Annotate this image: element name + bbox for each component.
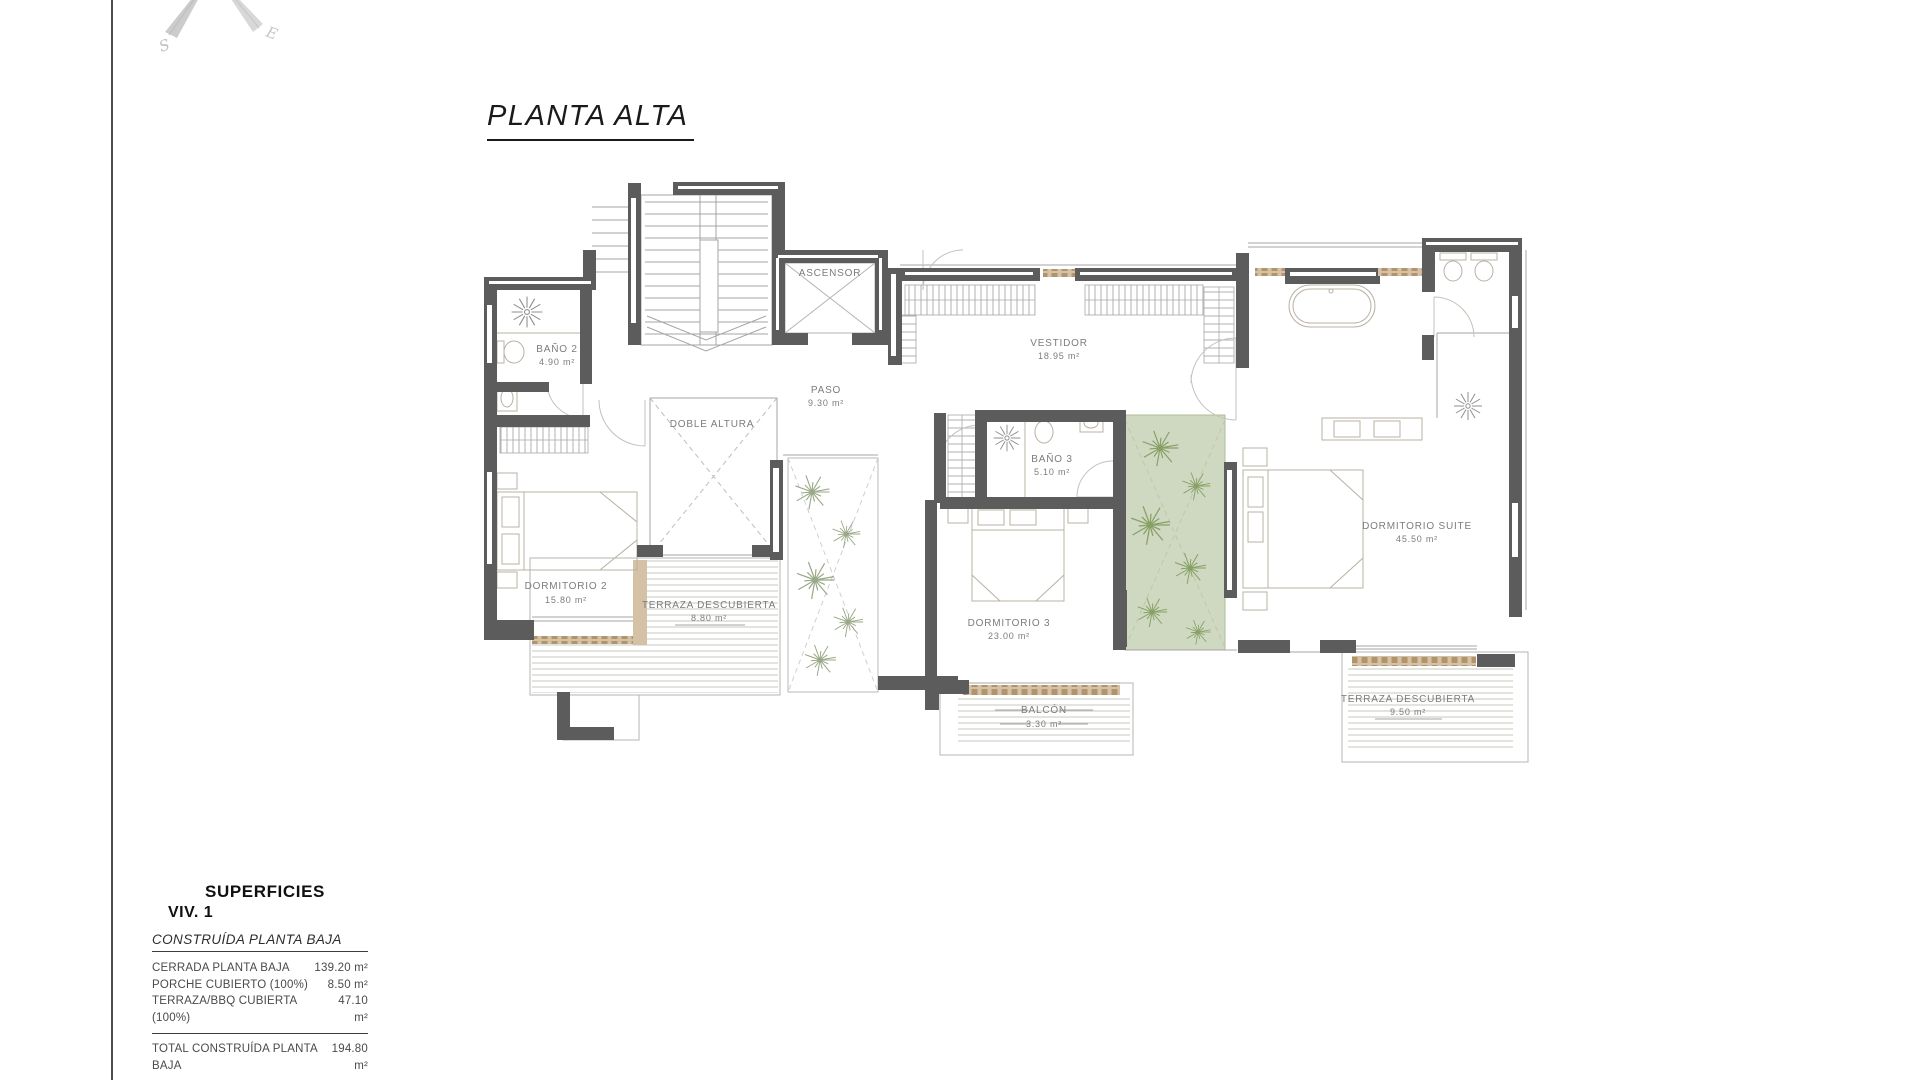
- superficies-title: SUPERFICIES: [205, 882, 380, 902]
- room-area-paso: 9.30 m²: [808, 398, 844, 408]
- table-row: CERRADA PLANTA BAJA 139.20 m²: [152, 960, 368, 977]
- drawing-sheet: S E PLANTA ALTA: [0, 0, 1920, 1080]
- room-label-suite: DORMITORIO SUITE: [1362, 521, 1472, 532]
- room-label-bano3: BAÑO 3: [1031, 452, 1072, 465]
- room-area-vestidor: 18.95 m²: [1038, 351, 1080, 361]
- room-label-balcon: BALCÓN: [1021, 703, 1067, 716]
- superficies-table: SUPERFICIES VIV. 1 CONSTRUÍDA PLANTA BAJ…: [150, 882, 380, 1080]
- superficies-vivienda: VIV. 1: [168, 904, 380, 922]
- room-area-dormitorio3: 23.00 m²: [988, 631, 1030, 641]
- room-label-doble-altura: DOBLE ALTURA: [670, 419, 754, 430]
- terrace-decks: [530, 558, 1528, 762]
- room-area-bano2: 4.90 m²: [539, 357, 575, 367]
- table-row: TERRAZA/BBQ CUBIERTA (100%) 47.10 m²: [152, 993, 368, 1026]
- room-area-terraza-izq: 8.80 m²: [691, 613, 727, 623]
- room-label-dormitorio2: DORMITORIO 2: [525, 581, 608, 592]
- room-label-terraza-der: TERRAZA DESCUBIERTA: [1341, 694, 1475, 705]
- room-area-dormitorio2: 15.80 m²: [545, 595, 587, 605]
- room-area-terraza-der: 9.50 m²: [1390, 707, 1426, 717]
- planter-strip: [788, 458, 878, 692]
- section-rows-planta-baja: CERRADA PLANTA BAJA 139.20 m² PORCHE CUB…: [152, 960, 368, 1074]
- room-area-bano3: 5.10 m²: [1034, 467, 1070, 477]
- room-label-dormitorio3: DORMITORIO 3: [968, 618, 1051, 629]
- room-label-terraza-izq: TERRAZA DESCUBIERTA: [642, 600, 776, 611]
- room-label-bano2: BAÑO 2: [536, 342, 577, 355]
- room-area-balcon: 3.30 m²: [1026, 719, 1062, 729]
- section-heading-planta-baja: CONSTRUÍDA PLANTA BAJA: [152, 932, 368, 952]
- patio-garden: [1125, 415, 1225, 650]
- room-label-paso: PASO: [811, 385, 841, 396]
- table-total-row: TOTAL CONSTRUÍDA PLANTA BAJA 194.80 m²: [152, 1033, 368, 1074]
- room-area-suite: 45.50 m²: [1396, 534, 1438, 544]
- room-label-vestidor: VESTIDOR: [1030, 338, 1088, 349]
- room-label-ascensor: ASCENSOR: [799, 268, 862, 279]
- table-row: PORCHE CUBIERTO (100%) 8.50 m²: [152, 977, 368, 994]
